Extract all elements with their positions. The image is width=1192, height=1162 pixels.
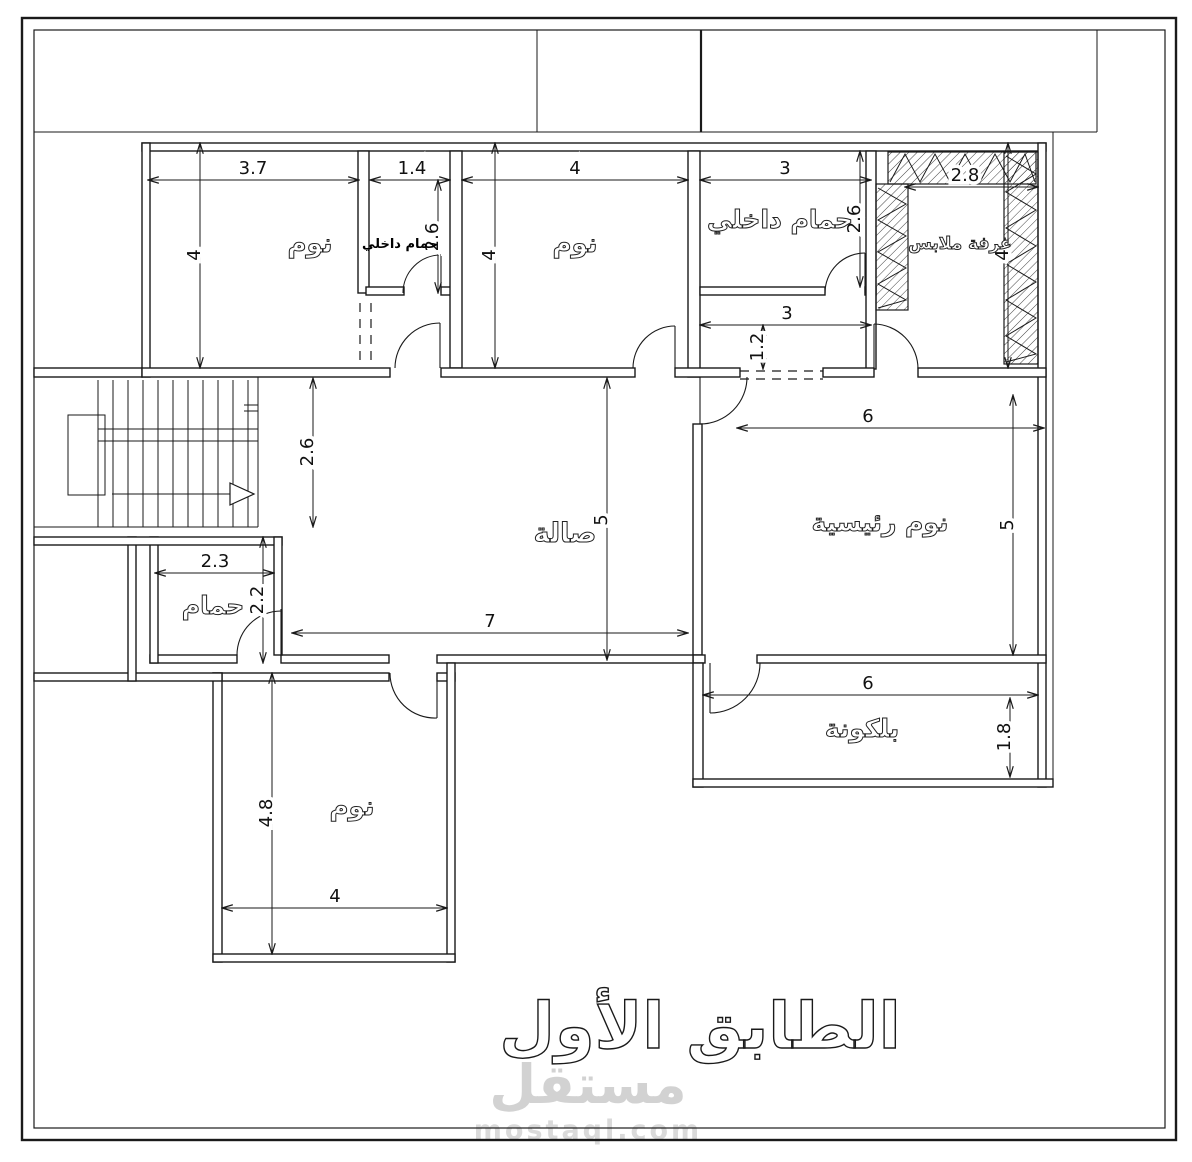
floor-plan-page: مستقل mostaql.com	[0, 0, 1192, 1162]
dimension-value-3: 3	[779, 158, 790, 179]
dimension-value-4: 2.8	[951, 165, 980, 186]
dimension-value-1: 1.4	[398, 158, 427, 179]
room-label-inner-bathroom-small: حمام داخلي	[362, 237, 438, 252]
door-master-bedroom	[700, 377, 747, 424]
door-bedroom-top-left	[395, 323, 440, 368]
dimension-value-22: 4	[329, 886, 340, 907]
dimension-value-2: 4	[569, 158, 580, 179]
stairs	[34, 377, 258, 527]
floor-plan-canvas: مستقل mostaql.com	[0, 0, 1192, 1162]
door-inner-bath-master	[825, 253, 865, 293]
dimension-value-12: 6	[862, 406, 873, 427]
dimension-value-0: 3.7	[239, 158, 268, 179]
dimension-value-15: 2.6	[297, 438, 318, 467]
room-label-bedroom-bottom: نوم	[329, 792, 374, 822]
dimension-value-11: 1.2	[747, 333, 768, 362]
dimension-value-14: 5	[997, 519, 1018, 530]
dimension-value-21: 4.8	[256, 799, 277, 828]
room-label-dressing-room: غرفة ملابس	[908, 234, 1011, 254]
room-label-inner-bathroom-master: حمام داخلي	[707, 205, 853, 234]
room-label-balcony: بلكونة	[825, 714, 899, 744]
dimension-value-5: 4	[184, 249, 205, 260]
door-bedroom-bottom	[390, 673, 437, 718]
door-dressing-room	[874, 324, 918, 369]
dimension-value-20: 1.8	[994, 723, 1015, 752]
doors	[237, 253, 918, 718]
watermark: مستقل mostaql.com	[474, 1053, 702, 1146]
dimension-value-19: 6	[862, 673, 873, 694]
floor-title: الطابق الأول	[499, 987, 900, 1064]
dimension-value-18: 7	[484, 611, 495, 632]
room-label-bedroom-top-left: نوم	[287, 229, 332, 259]
room-label-hall: صالة	[534, 518, 597, 549]
watermark-url: mostaql.com	[474, 1115, 702, 1146]
door-balcony	[710, 663, 760, 713]
door-bedroom-top-middle	[633, 326, 675, 368]
border-frame	[22, 18, 1176, 1140]
dimension-value-17: 2.2	[247, 586, 268, 615]
door-inner-bath-small	[403, 255, 441, 293]
stairs-direction-arrow	[230, 483, 254, 505]
dimension-value-7: 4	[479, 249, 500, 260]
room-label-master-bedroom: نوم رئيسية	[812, 508, 949, 538]
dimension-value-16: 2.3	[201, 551, 230, 572]
room-label-bathroom: حمام	[182, 591, 245, 620]
stair-treads	[98, 380, 248, 527]
room-label-bedroom-top-middle: نوم	[552, 229, 597, 259]
dimension-value-10: 3	[781, 303, 792, 324]
